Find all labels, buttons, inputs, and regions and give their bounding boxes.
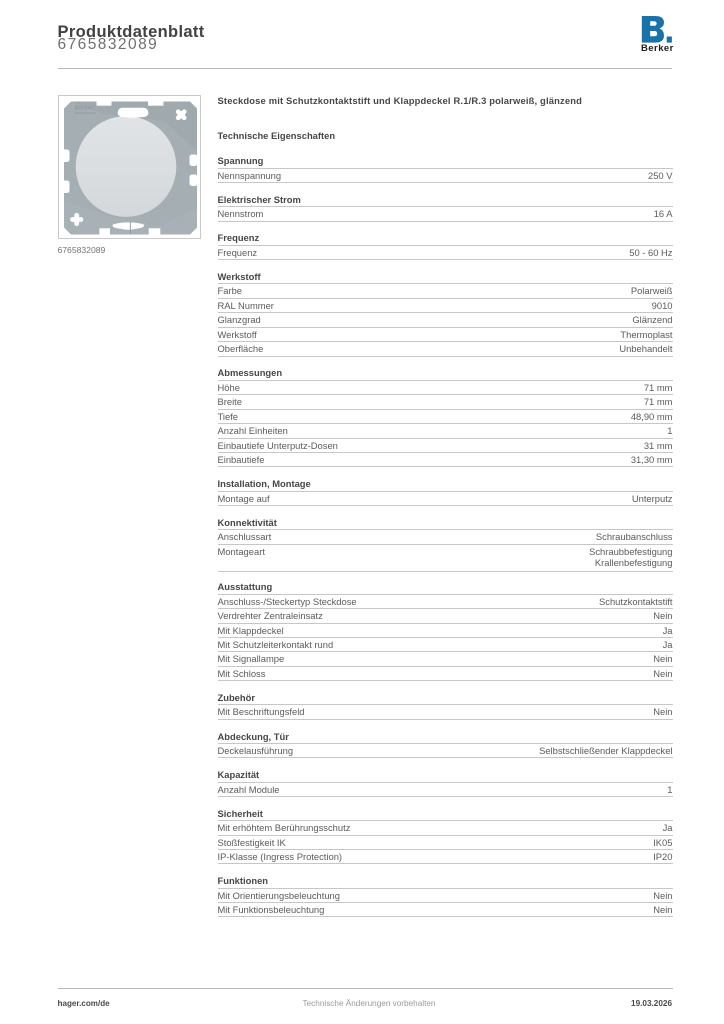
- svg-text:Berker: Berker: [75, 105, 95, 111]
